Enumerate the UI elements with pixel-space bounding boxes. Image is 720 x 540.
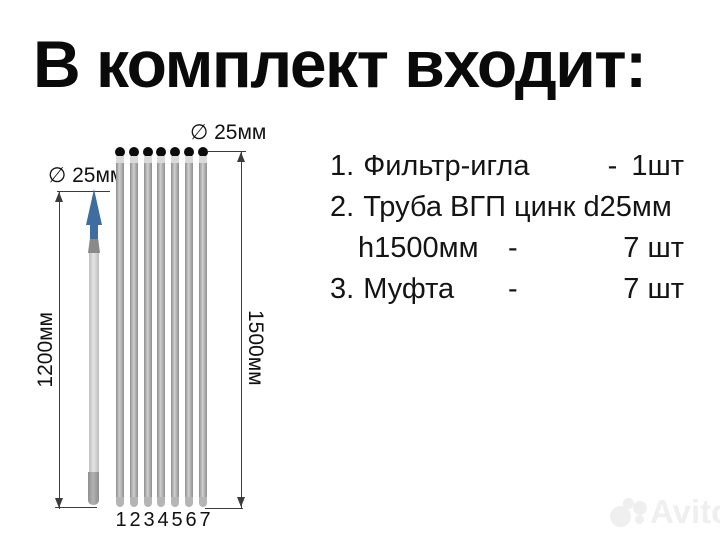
pipe-connector xyxy=(88,239,100,253)
list-item: 3.Муфта - 7 шт xyxy=(330,269,684,310)
pipe-bottom xyxy=(144,497,152,507)
pipe-bottom xyxy=(199,497,207,507)
pipe-bottom xyxy=(171,497,179,507)
filter-segment xyxy=(88,472,99,505)
item-dash: - xyxy=(608,146,618,187)
pipe xyxy=(184,147,194,507)
flow-arrow-shaft xyxy=(90,224,98,239)
pipe-body xyxy=(157,156,165,497)
pipe-number: 7 xyxy=(198,509,212,532)
pipe-body xyxy=(185,156,193,497)
item-number: 2. xyxy=(330,191,354,223)
pipe-number: 4 xyxy=(156,509,170,532)
product-info-image: В комплект входит: 1.Фильтр-игла - 1шт 2… xyxy=(0,0,720,540)
pipe-neck xyxy=(171,156,179,163)
avito-logo-circle xyxy=(633,501,647,515)
pipe xyxy=(129,147,139,507)
filter-needle-pipe xyxy=(89,253,99,472)
pipe-neck xyxy=(144,156,152,163)
pipe-number: 2 xyxy=(128,509,142,532)
avito-watermark: Avito xyxy=(606,492,718,536)
pipe-body xyxy=(199,156,207,497)
kit-list: 1.Фильтр-игла - 1шт 2.Труба ВГП цинк d25… xyxy=(330,146,684,310)
avito-logo-circle xyxy=(635,515,644,524)
diameter-label: ∅ 25мм xyxy=(190,120,266,145)
pipe-neck xyxy=(185,156,193,163)
dimension-tick-bottom xyxy=(55,507,97,508)
pipe-body xyxy=(116,156,124,497)
pipe xyxy=(143,147,153,507)
page-title: В комплект входит: xyxy=(33,30,646,98)
dimension-line xyxy=(59,191,60,509)
item-qty: 7 шт xyxy=(623,228,684,269)
pipe-number: 3 xyxy=(142,509,156,532)
dimension-arrow-down-icon xyxy=(237,497,245,507)
item-name: Муфта xyxy=(363,273,454,305)
pipe-bottom xyxy=(130,497,138,507)
item-name: Фильтр-игла xyxy=(363,150,529,182)
pipe-neck xyxy=(130,156,138,163)
pipe-bottom xyxy=(116,497,124,507)
pipe xyxy=(198,147,208,507)
pipe xyxy=(156,147,166,507)
item-dash: - xyxy=(508,228,518,269)
pipe-numbers: 1 2 3 4 5 6 7 xyxy=(114,509,212,532)
item-name-continued: h1500мм xyxy=(358,232,479,264)
dimension-line xyxy=(241,151,242,508)
item-qty: 7 шт xyxy=(623,269,684,310)
dimension-tick-top xyxy=(57,191,110,192)
flow-arrow-icon xyxy=(86,189,102,225)
height-label: 1200мм xyxy=(34,312,58,388)
pipe-body xyxy=(130,156,138,497)
pipe-number: 6 xyxy=(184,509,198,532)
dimension-arrow-up-icon xyxy=(55,192,63,202)
list-item-continuation: h1500мм - 7 шт xyxy=(330,228,684,269)
item-name: Труба ВГП цинк d25мм xyxy=(363,191,672,223)
diameter-label: ∅ 25мм xyxy=(48,163,124,188)
height-label: 1500мм xyxy=(243,310,267,386)
dimension-arrow-up-icon xyxy=(237,152,245,162)
pipe-body xyxy=(171,156,179,497)
pipe xyxy=(115,147,125,507)
item-dash: - xyxy=(508,269,518,310)
list-item: 2.Труба ВГП цинк d25мм xyxy=(330,187,684,228)
pipe-bottom xyxy=(157,497,165,507)
dimension-tick-bottom xyxy=(205,508,243,509)
pipe-number: 5 xyxy=(170,509,184,532)
pipe-neck xyxy=(199,156,207,163)
pipe-body xyxy=(144,156,152,497)
pipe-neck xyxy=(157,156,165,163)
avito-logo-text: Avito xyxy=(650,493,720,531)
pipe-neck xyxy=(116,156,124,163)
list-item: 1.Фильтр-игла - 1шт xyxy=(330,146,684,187)
item-qty: 1шт xyxy=(631,146,684,187)
item-number: 3. xyxy=(330,273,354,305)
avito-logo-circle xyxy=(610,506,631,527)
pipe xyxy=(170,147,180,507)
pipe-bottom xyxy=(185,497,193,507)
item-number: 1. xyxy=(330,150,354,182)
pipe-number: 1 xyxy=(114,509,128,532)
